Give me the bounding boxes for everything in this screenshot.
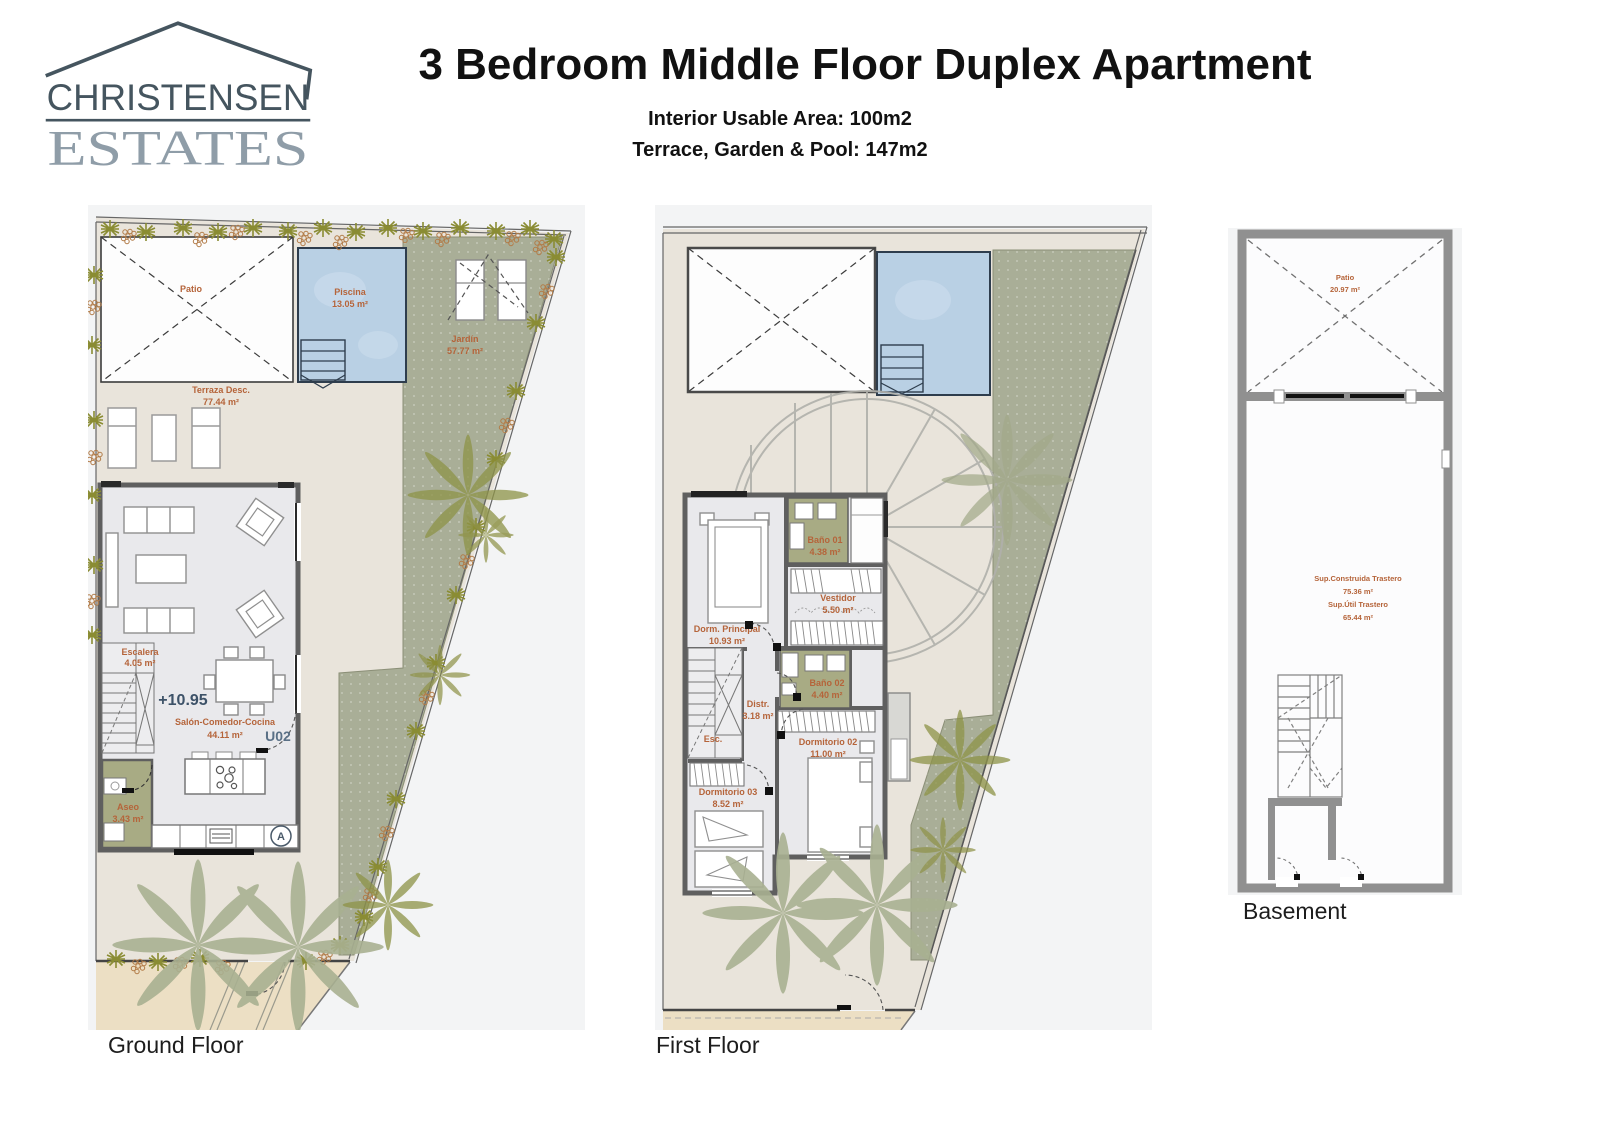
garden-label: Jardín [451, 334, 478, 344]
dormp-area: 10.93 m² [709, 636, 745, 646]
aseo-room: Aseo 3.43 m² [102, 760, 152, 848]
basement-patio-label: Patio [1336, 273, 1355, 282]
terrace-label: Terraza Desc. [192, 385, 250, 395]
first-floor-plan: Dorm. Principal 10.93 m² Baño 01 4.38 m²… [655, 205, 1152, 1030]
kitchen-island [185, 752, 265, 794]
ground-floor-plan: Patio Piscina 13.05 m² Terraza Desc. 77.… [88, 205, 585, 1030]
subtitle-block: Interior Usable Area: 100m2 Terrace, Gar… [380, 104, 1350, 166]
logo-line1: CHRISTENSEN [47, 76, 310, 118]
wardrobe-dorm02 [778, 711, 875, 732]
stairs-label: Escalera [121, 647, 159, 657]
patio-void: Patio [101, 237, 293, 382]
storage-line2: 75.36 m² [1343, 587, 1374, 596]
page-title: 3 Bedroom Middle Floor Duplex Apartment [380, 42, 1350, 88]
esc-label: Esc. [704, 734, 723, 744]
pool-area: 13.05 m² [332, 299, 368, 309]
bed-principal [700, 513, 769, 623]
subtitle-exterior-area: Terrace, Garden & Pool: 147m2 [380, 135, 1180, 166]
brand-logo: CHRISTENSEN ESTATES [42, 16, 314, 170]
terrace-area: 77.44 m² [203, 397, 239, 407]
aseo-label: Aseo [117, 802, 140, 812]
basement-caption: Basement [1243, 898, 1347, 925]
patio-void [688, 248, 875, 392]
bano01-label: Baño 01 [807, 535, 842, 545]
sidewalk [663, 1011, 915, 1030]
storage-line4: 65.44 m² [1343, 613, 1374, 622]
vestidor-label: Vestidor [820, 593, 856, 603]
marker-a: A [277, 831, 285, 843]
window-notch [1442, 450, 1450, 468]
level-marker: +10.95 [158, 692, 207, 709]
entry-door-leaf [256, 748, 268, 753]
house-interior: Escalera 4.05 m² +10.95 Salón-Comedor-Co… [100, 481, 301, 855]
pool: Piscina 13.05 m² [298, 248, 406, 388]
living-label: Salón-Comedor-Cocina [175, 717, 276, 727]
stairs-area: 4.05 m² [124, 658, 155, 668]
wardrobe-dorm03 [690, 763, 744, 786]
dorm02-label: Dormitorio 02 [799, 737, 858, 747]
ground-floor-caption: Ground Floor [108, 1032, 244, 1059]
bathroom-01: Baño 01 4.38 m² [788, 498, 883, 563]
planter [888, 693, 910, 781]
pool-label: Piscina [334, 287, 367, 297]
header: 3 Bedroom Middle Floor Duplex Apartment … [380, 42, 1350, 166]
aseo-area: 3.43 m² [112, 814, 143, 824]
house-interior: Dorm. Principal 10.93 m² Baño 01 4.38 m²… [685, 491, 888, 897]
pool [877, 252, 990, 395]
unit-label: U02 [265, 728, 291, 744]
brand-logo-graphic: CHRISTENSEN ESTATES [42, 16, 314, 170]
garden-area: 57.77 m² [447, 346, 483, 356]
bano02-area: 4.40 m² [811, 690, 842, 700]
storage-line1: Sup.Construida Trastero [1314, 574, 1402, 583]
storage-line3: Sup.Útil Trastero [1328, 600, 1388, 609]
bano02-label: Baño 02 [809, 678, 844, 688]
dorm03-area: 8.52 m² [712, 799, 743, 809]
basement-patio-area: 20.97 m² [1330, 285, 1361, 294]
distr-area: 3.18 m² [742, 711, 773, 721]
first-floor-caption: First Floor [656, 1032, 760, 1059]
vestidor-area: 5.50 m² [822, 605, 853, 615]
subtitle-interior-area: Interior Usable Area: 100m2 [380, 104, 1180, 135]
basement-plan: Patio 20.97 m² Sup.Construida Trastero 7… [1228, 228, 1462, 895]
floorplan-sheet: CHRISTENSEN ESTATES 3 Bedroom Middle Flo… [0, 0, 1600, 1131]
logo-line2: ESTATES [48, 121, 309, 170]
terrace-loungers [108, 408, 220, 468]
distr-label: Distr. [747, 699, 770, 709]
patio-label: Patio [180, 284, 203, 294]
bed-dorm02 [808, 741, 874, 852]
dorm03-label: Dormitorio 03 [699, 787, 758, 797]
basement-walls [1242, 234, 1448, 888]
bano01-area: 4.38 m² [809, 547, 840, 557]
living-area: 44.11 m² [207, 730, 243, 740]
